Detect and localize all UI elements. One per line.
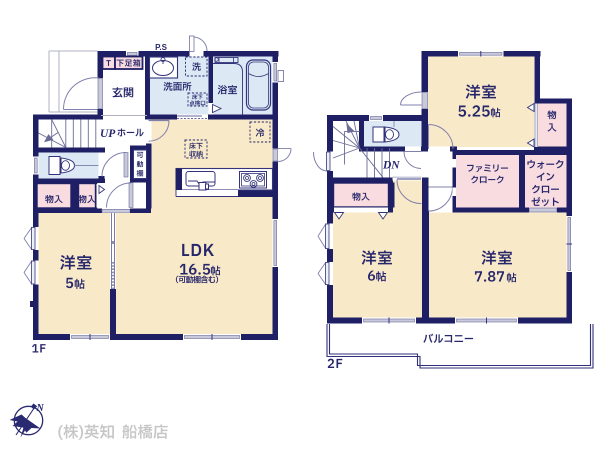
svg-text:DN: DN bbox=[382, 160, 400, 172]
svg-text:N: N bbox=[36, 403, 45, 414]
svg-text:UP: UP bbox=[100, 128, 116, 140]
svg-text:P.S: P.S bbox=[155, 43, 168, 52]
